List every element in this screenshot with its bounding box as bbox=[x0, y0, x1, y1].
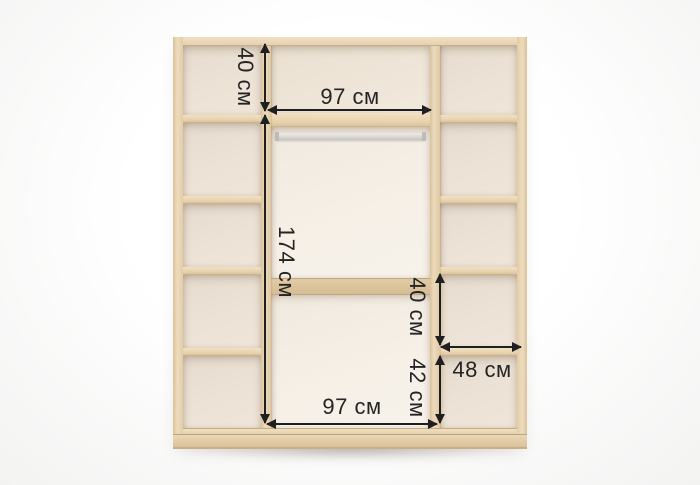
dim-label-right-width: 48 см bbox=[452, 357, 511, 383]
shelf-right-2 bbox=[440, 196, 517, 204]
dim-label-center-bottom-width: 97 см bbox=[322, 394, 381, 420]
shelf-compartment-left-2 bbox=[183, 122, 261, 196]
wardrobe-dimensions-diagram: 40 см 97 см 174 см 40 см 42 см 48 см 97 … bbox=[0, 0, 700, 485]
shelf-compartment-right-4 bbox=[440, 274, 517, 348]
dim-label-right-mid-height: 40 см bbox=[404, 277, 430, 336]
shelf-right-4 bbox=[440, 348, 517, 356]
dim-arrow-center-bottom-width bbox=[267, 423, 437, 425]
dim-arrow-top-shelf-height bbox=[264, 44, 266, 111]
dim-arrow-right-width bbox=[441, 346, 521, 348]
shelf-left-2 bbox=[183, 196, 261, 204]
dim-label-hanging-height: 174 см bbox=[273, 226, 299, 298]
dim-label-center-top-width: 97 см bbox=[320, 84, 379, 110]
dim-label-top-shelf-height: 40 см bbox=[232, 47, 258, 106]
shelf-right-3 bbox=[440, 267, 517, 275]
side-panel-right bbox=[517, 37, 527, 446]
shelf-left-1 bbox=[183, 115, 261, 123]
dim-arrow-right-bottom-height bbox=[439, 356, 441, 423]
dim-arrow-right-mid-height bbox=[439, 274, 441, 345]
shelf-compartment-right-3 bbox=[440, 203, 517, 267]
shelf-compartment-left-4 bbox=[183, 274, 261, 348]
shelf-left-3 bbox=[183, 267, 261, 275]
top-panel bbox=[173, 37, 527, 46]
dim-arrow-hanging-height bbox=[264, 115, 266, 423]
dim-label-right-bottom-height: 42 см bbox=[404, 358, 430, 417]
shelf-right-1 bbox=[440, 115, 517, 123]
shelf-left-4 bbox=[183, 348, 261, 356]
shelf-compartment-right-2 bbox=[440, 122, 517, 196]
side-panel-left bbox=[173, 37, 183, 446]
plinth bbox=[173, 434, 527, 449]
hanging-rod bbox=[275, 133, 426, 140]
shelf-compartment-left-5 bbox=[183, 355, 261, 428]
shelf-compartment-left-3 bbox=[183, 203, 261, 267]
center-top-shelf bbox=[271, 113, 430, 127]
shelf-compartment-right-1 bbox=[440, 45, 517, 115]
